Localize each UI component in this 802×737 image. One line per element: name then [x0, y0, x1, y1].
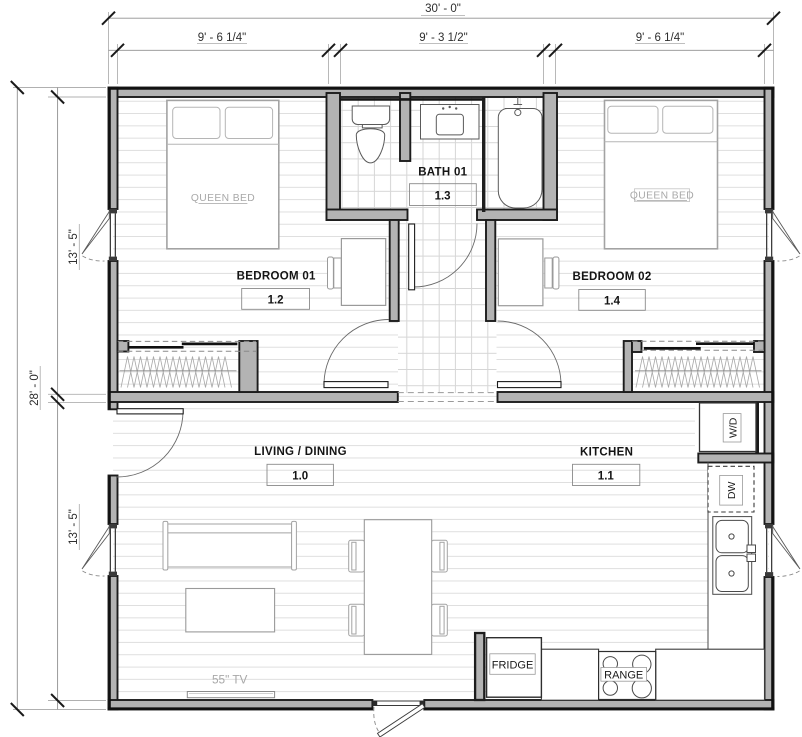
svg-text:1.2: 1.2 — [268, 294, 284, 306]
svg-text:BEDROOM 01: BEDROOM 01 — [237, 271, 316, 283]
svg-text:9' - 6 1/4": 9' - 6 1/4" — [636, 32, 684, 44]
svg-text:QUEEN BED: QUEEN BED — [630, 190, 694, 201]
svg-text:BATH 01: BATH 01 — [418, 166, 467, 178]
svg-text:9' - 3 1/2": 9' - 3 1/2" — [419, 32, 467, 44]
svg-text:1.4: 1.4 — [604, 295, 621, 307]
svg-text:QUEEN BED: QUEEN BED — [191, 193, 255, 204]
svg-text:28' - 0": 28' - 0" — [29, 370, 41, 406]
svg-text:55" TV: 55" TV — [212, 673, 248, 687]
svg-text:1.1: 1.1 — [598, 471, 615, 483]
svg-text:FRIDGE: FRIDGE — [492, 660, 534, 672]
svg-text:BEDROOM 02: BEDROOM 02 — [572, 271, 651, 283]
svg-text:1.0: 1.0 — [292, 471, 308, 483]
svg-text:1.3: 1.3 — [435, 190, 451, 202]
svg-text:DW: DW — [726, 481, 738, 499]
svg-text:KITCHEN: KITCHEN — [580, 447, 633, 459]
svg-text:9' - 6 1/4": 9' - 6 1/4" — [198, 32, 246, 44]
svg-text:LIVING / DINING: LIVING / DINING — [254, 446, 347, 458]
svg-text:13' - 5": 13' - 5" — [68, 229, 80, 265]
svg-text:30' - 0": 30' - 0" — [425, 3, 461, 15]
svg-text:13' - 5": 13' - 5" — [68, 509, 80, 545]
svg-text:RANGE: RANGE — [604, 669, 643, 681]
svg-text:W/D: W/D — [727, 417, 739, 438]
